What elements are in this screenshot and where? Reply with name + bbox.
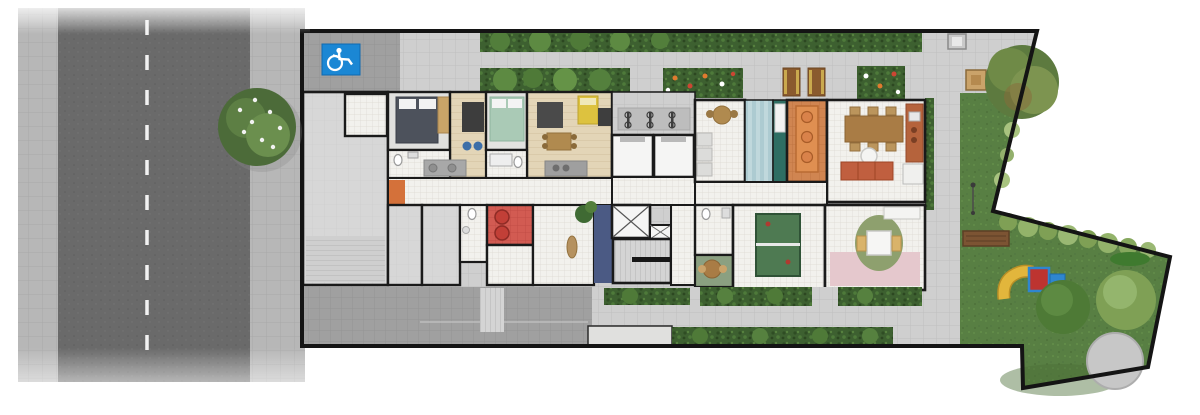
circular-patio: [1087, 333, 1143, 389]
street-sidewalk-left: [18, 8, 58, 382]
sofa-terracotta: [841, 162, 893, 180]
kitchen-sink: [909, 112, 920, 121]
street-sidewalk-right: [250, 8, 305, 382]
utility-box-lid: [952, 37, 962, 46]
dining-chair-1: [850, 107, 860, 115]
hedge-blob-8: [862, 328, 878, 344]
unit2-cabinet: [537, 102, 563, 128]
hedge-blob-5: [692, 328, 708, 344]
unit1-stool-a: [463, 142, 472, 151]
street-tree-blossom-6: [242, 130, 246, 134]
street-tree-blossom-1: [238, 108, 242, 112]
street-fade-top: [10, 0, 310, 34]
hedge-top-bush-2: [529, 30, 551, 52]
unit1-sink: [408, 152, 418, 158]
unit1-toilet: [394, 155, 402, 166]
hedge-blob-6: [752, 328, 768, 344]
trash-bin-1: [495, 210, 509, 224]
dining-chair-6: [886, 143, 896, 151]
unit2-chair-4: [571, 143, 577, 149]
kids-chair-b: [892, 236, 901, 251]
wc-common-sink: [722, 208, 730, 218]
kids-counter: [884, 207, 920, 219]
street-tree-blossom-2: [253, 98, 257, 102]
floor-plan: [0, 0, 1200, 415]
bike-rack-1: [627, 112, 630, 128]
lobby-bench: [567, 236, 577, 258]
laundry-drum-a: [429, 164, 437, 172]
service-wc-toilet: [468, 209, 476, 220]
hedge-blob-7: [812, 328, 828, 344]
lounge-chair-b: [730, 110, 738, 118]
corridor-main: [388, 178, 612, 205]
pingpong-paddle-a: [766, 222, 771, 227]
lounge-seat-2: [697, 148, 712, 161]
playground-bush-big-hi: [1041, 284, 1073, 316]
service-wc-sink: [463, 227, 470, 234]
grass-swoosh: [1110, 252, 1150, 266]
flower-dot-1: [673, 76, 678, 81]
gourmet-stool-3: [802, 152, 813, 163]
wheelchair-icon-head: [336, 48, 341, 53]
south-walkway: [588, 326, 672, 346]
unit2-chair-1: [542, 134, 548, 140]
wc-common-toilet: [702, 209, 710, 220]
corridor-mid: [612, 177, 695, 205]
hedge-blob-4: [857, 288, 873, 304]
elevator-2-door: [661, 136, 686, 142]
laundry-drum-b: [448, 164, 456, 172]
flower-dot-7: [864, 74, 869, 79]
bike-rack-2: [649, 112, 652, 128]
hedge-building-right: [925, 98, 934, 210]
street-road: [58, 8, 250, 382]
street-tree-hi: [246, 113, 290, 157]
dining-chair-4: [850, 143, 860, 151]
counter-teal-cabinets: [775, 104, 785, 132]
lobby-plant-hi: [585, 201, 597, 213]
hedge-top-bush-5: [651, 31, 669, 49]
picnic-table-2-bench-b: [821, 70, 824, 94]
unit1-pillow-b: [419, 99, 436, 109]
alcove-chair-a: [698, 265, 706, 273]
picnic-table-1-bench-a: [784, 70, 787, 94]
playground-bench: [963, 231, 1009, 246]
unit2-pillow-a: [492, 99, 506, 108]
hall-right: [671, 205, 695, 285]
lounge-table: [713, 106, 731, 124]
unit1-pillow-a: [399, 99, 416, 109]
unit2-chair-3: [571, 134, 577, 140]
unit2-pillow-b: [508, 99, 522, 108]
hedge-top-bush-1: [490, 31, 510, 51]
unit2-toilet: [514, 157, 522, 168]
lamp-post-top: [971, 183, 976, 188]
flower-dot-2: [688, 84, 693, 89]
flower-dot-10: [896, 90, 900, 94]
dining-chair-3: [886, 107, 896, 115]
unit2-tub: [490, 154, 512, 166]
hedge-mid-bush-1: [493, 68, 517, 92]
flower-dot-3: [703, 74, 708, 79]
garden-table-top: [971, 75, 981, 85]
kitchen-burner-b: [911, 137, 917, 143]
garage-storage: [345, 94, 387, 136]
unit1-wardrobe: [438, 97, 450, 133]
hedge-south-1: [604, 288, 690, 305]
lamp-post-base: [971, 211, 975, 215]
kitchen-burner-a: [911, 127, 917, 133]
kids-table: [867, 231, 891, 255]
unit1-stool-b: [474, 142, 483, 151]
trash-room: [487, 205, 533, 245]
unit2-stove-b: [563, 165, 570, 172]
deck-blue: [745, 100, 773, 182]
street-tree-blossom-5: [260, 138, 264, 142]
dining-table: [845, 116, 903, 142]
street-tree-blossom-4: [278, 126, 282, 130]
trash-bin-2: [495, 226, 509, 240]
service-room-b: [422, 205, 460, 285]
hedge-mid-bush-4: [589, 69, 611, 91]
unit2-fridge: [598, 108, 611, 126]
unit2-table: [547, 133, 571, 150]
flowerbed-right: [857, 66, 905, 100]
kids-chair-a: [857, 236, 866, 251]
lobby-rug: [594, 205, 612, 283]
hedge-south-2: [700, 287, 812, 306]
unit2-chair-2: [542, 143, 548, 149]
entry-orange-floor: [389, 180, 405, 205]
street-fade-bottom: [10, 348, 310, 415]
street-tree-blossom-3: [268, 110, 272, 114]
hedge-mid-bush-2: [523, 68, 543, 88]
exit-ramp: [480, 288, 504, 332]
lounge-seat-3: [697, 163, 712, 176]
unit2-yellow-pillow: [580, 98, 596, 105]
hedge-south-3: [838, 287, 922, 306]
gourmet-stool-1: [802, 112, 813, 123]
corridor-right: [695, 182, 827, 205]
garden-path-corner: [893, 303, 960, 346]
picnic-table-2-bench-a: [809, 70, 812, 94]
stairwell-divider: [632, 257, 671, 262]
driveway-south: [302, 287, 592, 346]
flower-dot-6: [731, 72, 735, 76]
garage-ramp: [306, 236, 385, 282]
service-store: [487, 245, 533, 285]
gourmet-stool-2: [802, 132, 813, 143]
flower-dot-9: [892, 72, 897, 77]
lounge-seat-1: [697, 133, 712, 146]
elevator-1-door: [620, 136, 645, 142]
dining-chair-2: [868, 107, 878, 115]
hedge-blob-2: [717, 288, 733, 304]
flower-dot-8: [878, 84, 883, 89]
site-plan-graphic: [0, 0, 1200, 415]
playground-bush-light-hi: [1103, 275, 1137, 309]
kitchen-fridge: [903, 164, 923, 184]
street-tree-blossom-8: [271, 145, 275, 149]
alcove-chair-b: [719, 265, 727, 273]
pingpong-paddle-b: [786, 260, 791, 265]
flower-dot-4: [720, 82, 725, 87]
picnic-table-1-bench-b: [796, 70, 799, 94]
pingpong-net: [756, 243, 800, 246]
unit1-desk: [462, 102, 484, 132]
hedge-blob-3: [767, 288, 783, 304]
hedge-blob-1: [622, 288, 638, 304]
bike-rack-3: [671, 112, 674, 128]
unit2-stove-a: [553, 165, 560, 172]
lounge-chair-a: [706, 110, 714, 118]
hedge-top-bush-4: [610, 31, 630, 51]
service-room-a: [388, 205, 422, 285]
street-tree-blossom-7: [250, 120, 254, 124]
hedge-mid-bush-3: [553, 68, 577, 92]
